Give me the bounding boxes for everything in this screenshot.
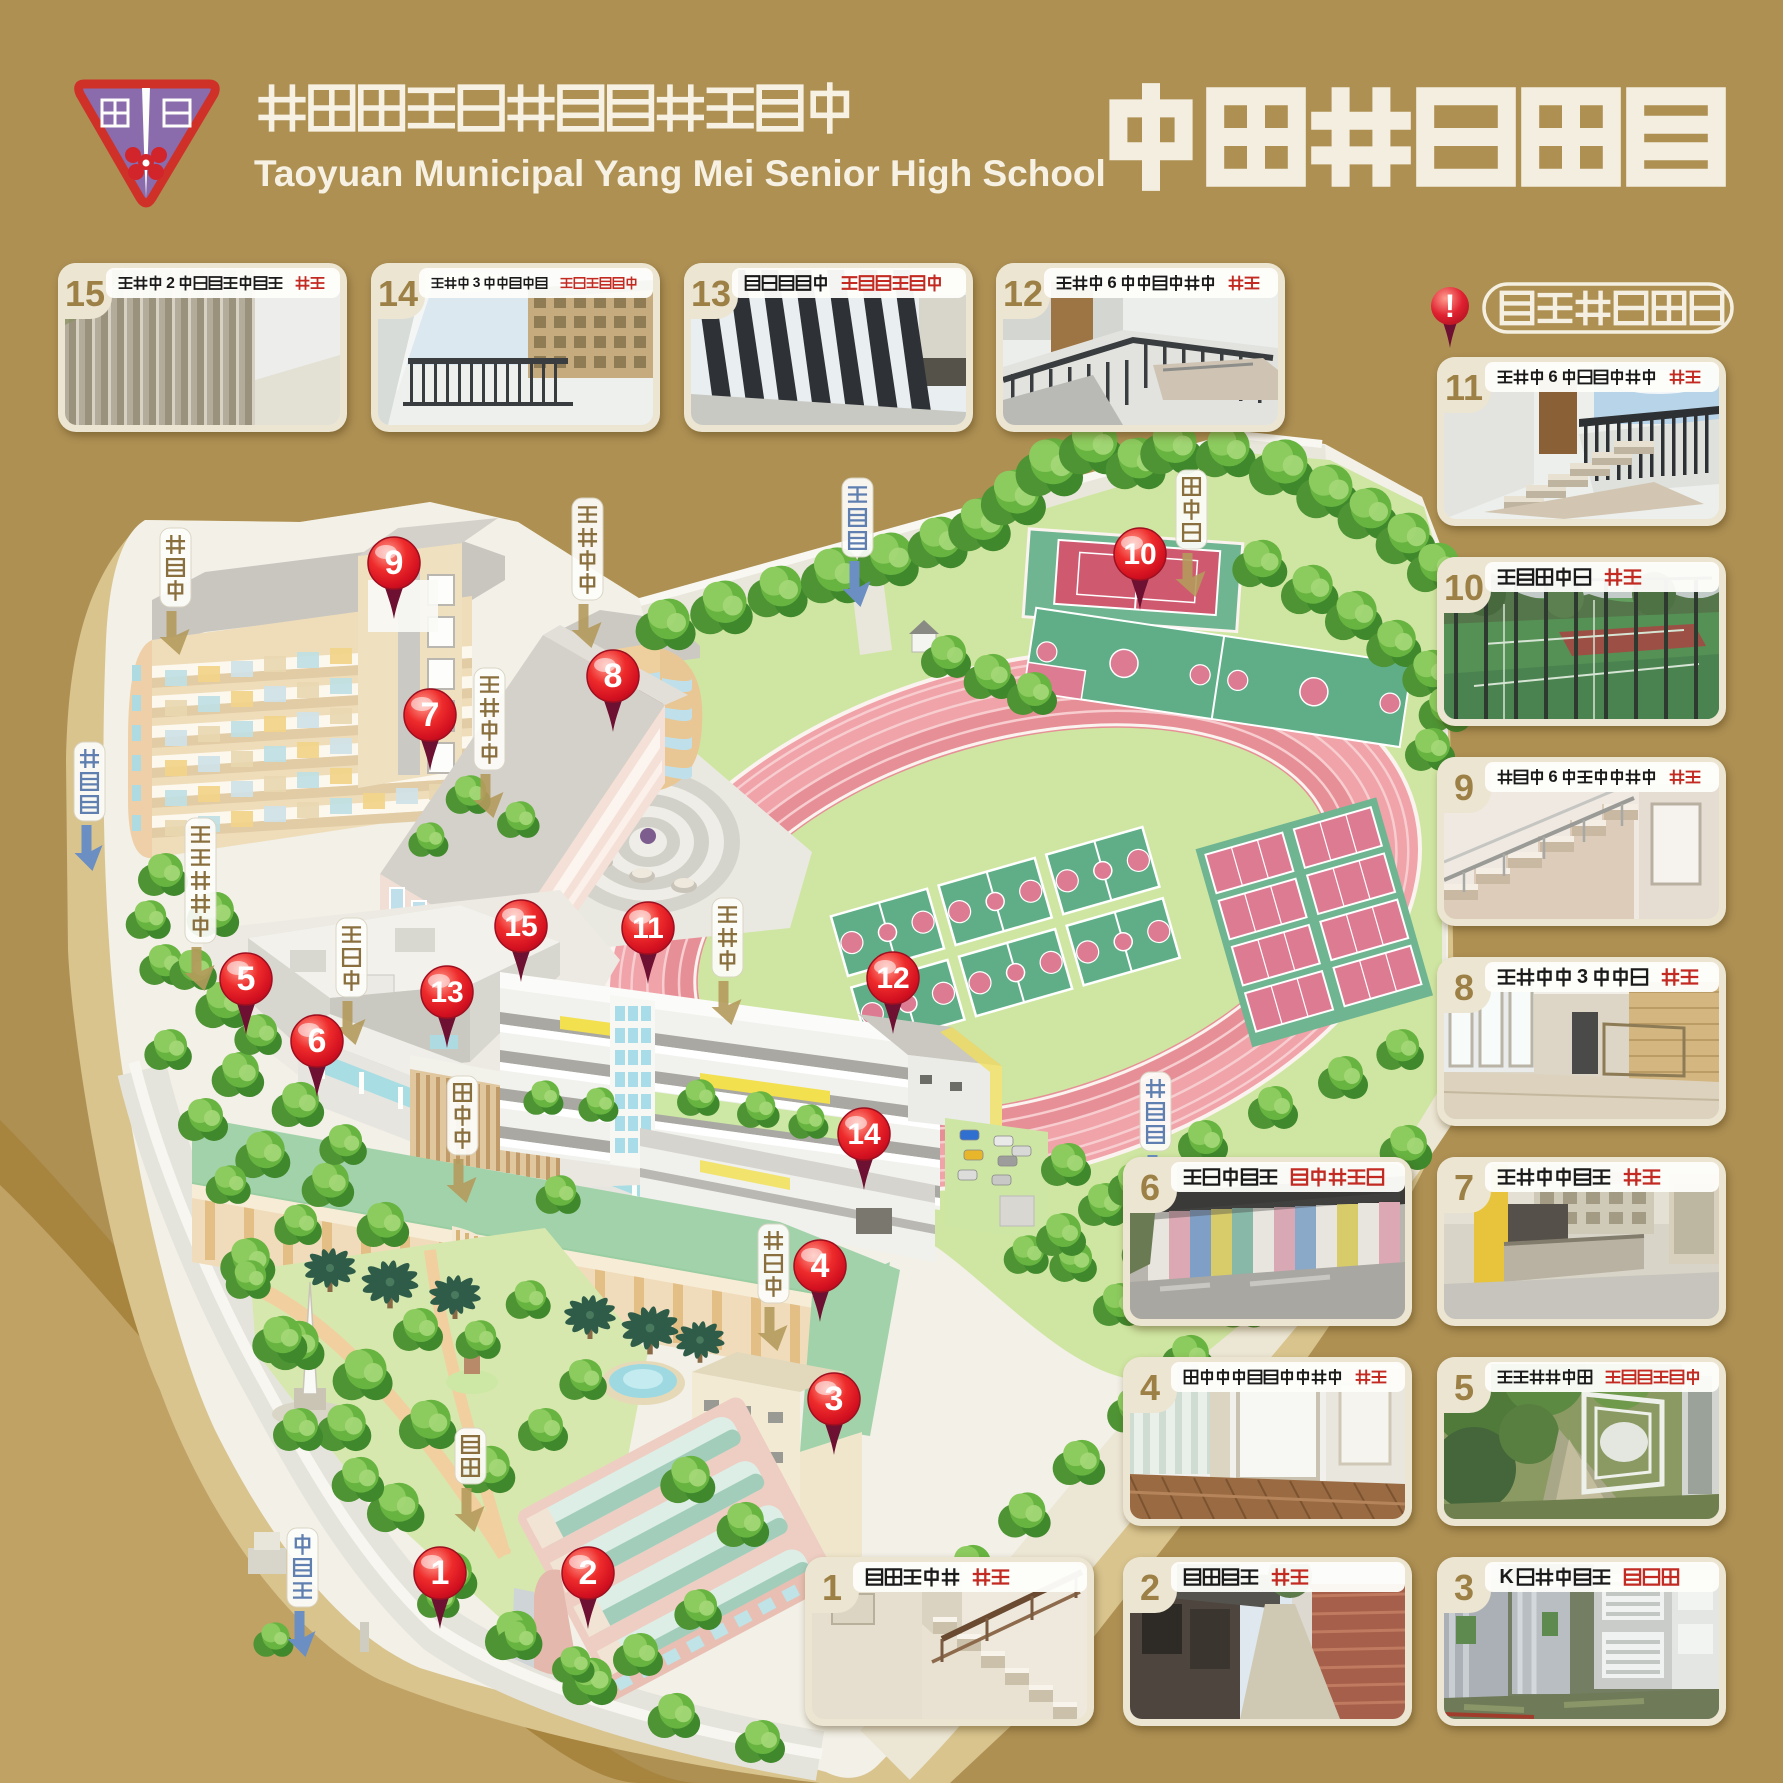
svg-text:14: 14 xyxy=(847,1118,881,1151)
svg-text:6: 6 xyxy=(1548,767,1557,786)
svg-text:Taoyuan Municipal Yang Mei Se: Taoyuan Municipal Yang Mei Senior High S… xyxy=(254,153,1106,194)
svg-text:K: K xyxy=(1499,1566,1514,1588)
svg-text:10: 10 xyxy=(1123,538,1156,571)
svg-text:7: 7 xyxy=(421,696,440,734)
svg-text:15: 15 xyxy=(504,910,537,943)
svg-text:11: 11 xyxy=(632,912,664,945)
svg-text:6: 6 xyxy=(1107,273,1116,292)
svg-text:2: 2 xyxy=(579,1554,598,1592)
svg-text:5: 5 xyxy=(237,960,256,998)
svg-text:6: 6 xyxy=(308,1022,327,1060)
svg-text:3: 3 xyxy=(1577,966,1588,988)
svg-text:8: 8 xyxy=(604,657,623,695)
svg-text:13: 13 xyxy=(430,976,463,1009)
svg-text:!: ! xyxy=(1445,288,1456,324)
svg-text:9: 9 xyxy=(385,544,404,582)
svg-text:4: 4 xyxy=(811,1247,830,1285)
svg-text:2: 2 xyxy=(166,275,175,292)
svg-text:3: 3 xyxy=(473,275,481,290)
svg-text:6: 6 xyxy=(1548,367,1557,386)
svg-text:12: 12 xyxy=(876,962,909,995)
svg-text:3: 3 xyxy=(825,1380,844,1418)
svg-text:1: 1 xyxy=(431,1554,450,1592)
